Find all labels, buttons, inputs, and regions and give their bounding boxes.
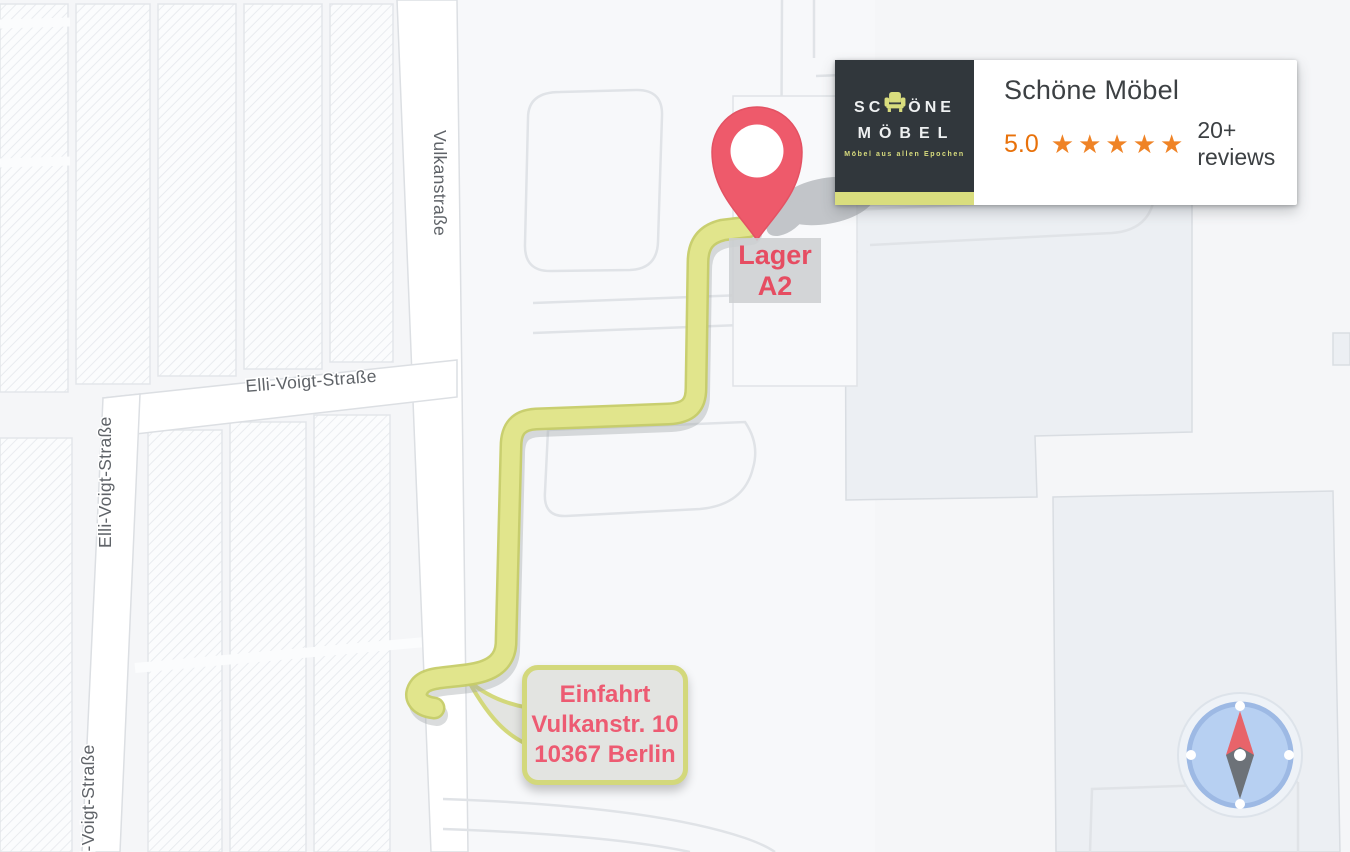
lager-a2-line1: Lager — [729, 240, 821, 271]
lager-a2-label: Lager A2 — [729, 238, 821, 303]
parcel-blocks-top-left — [0, 4, 393, 392]
map-screenshot: { "business_card": { "title": "Schöne Mö… — [0, 0, 1350, 852]
logo-word-pre: SC — [854, 100, 884, 116]
business-name: Schöne Möbel — [1004, 75, 1297, 106]
star-rating-icons: ★★★★★ — [1051, 131, 1188, 157]
parcel-blocks-bottom-left — [0, 415, 390, 852]
callout-line3: 10367 Berlin — [527, 740, 683, 770]
business-logo: SC ÖNE MÖBEL Möbel aus allen Epochen — [835, 60, 974, 205]
logo-accent-strip — [835, 192, 974, 205]
callout-line1: Einfahrt — [527, 680, 683, 710]
rating-row: 5.0 ★★★★★ 20+ reviews — [1004, 117, 1297, 171]
entrance-callout: Einfahrt Vulkanstr. 10 10367 Berlin — [522, 665, 688, 785]
lager-a2-line2: A2 — [729, 271, 821, 302]
logo-word-schoene: SC ÖNE — [854, 92, 955, 116]
logo-word-moebel: MÖBEL — [854, 125, 956, 143]
reviews-link[interactable]: 20+ reviews — [1197, 117, 1297, 171]
callout-line2: Vulkanstr. 10 — [527, 710, 683, 740]
compass-control[interactable] — [1176, 691, 1304, 819]
logo-tagline: Möbel aus allen Epochen — [844, 151, 964, 158]
rating-value: 5.0 — [1004, 130, 1039, 159]
street-label-elli-voigt-vertical: Elli-Voigt-Straße — [95, 416, 115, 548]
business-card: SC ÖNE MÖBEL Möbel aus allen Epochen — [835, 60, 1297, 205]
street-label-vulkanstrasse: Vulkanstraße — [430, 130, 450, 236]
logo-word-post: ÖNE — [908, 100, 955, 116]
street-label-elli-voigt-vertical-2: Elli-Voigt-Straße — [78, 744, 98, 852]
compass-icon — [1176, 691, 1304, 819]
armchair-icon — [884, 92, 906, 116]
business-card-info: Schöne Möbel 5.0 ★★★★★ 20+ reviews — [974, 60, 1297, 205]
